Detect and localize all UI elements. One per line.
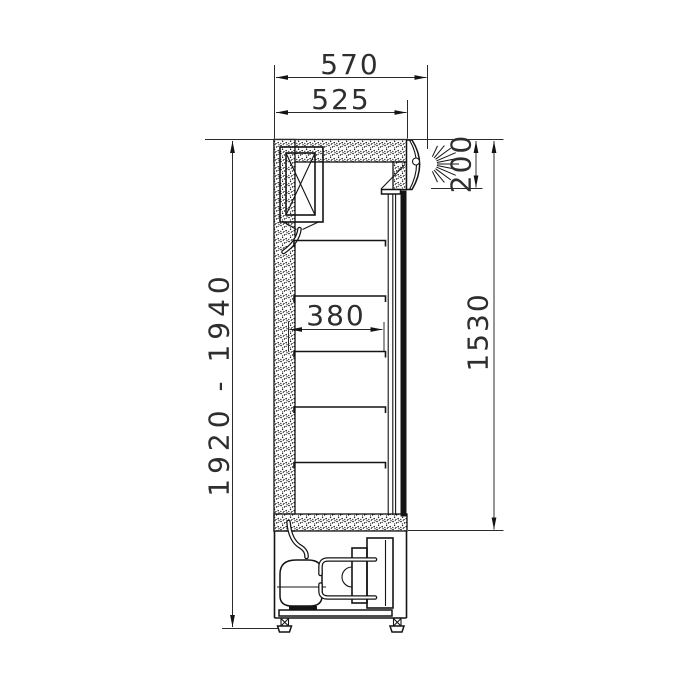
insulation-bottom	[274, 514, 407, 531]
dimension-cabinet-depth: 525	[276, 83, 408, 139]
dimension-overall-height: 1920 - 1940	[203, 140, 504, 629]
shelf	[294, 241, 386, 247]
dim-cabinet-depth-label: 525	[311, 83, 370, 116]
condenser-plate	[352, 548, 367, 603]
technical-drawing-page: 570 525 1920 - 1940 1530 200 380	[0, 0, 695, 695]
dim-canopy-height-label: 200	[445, 134, 478, 193]
base-plate	[279, 610, 392, 616]
dimension-shelf-depth: 380	[289, 299, 385, 351]
dimension-interior-height: 1530	[408, 141, 504, 531]
compressor-body	[280, 560, 322, 606]
machine-compartment	[275, 522, 407, 632]
shelf	[294, 463, 386, 469]
cabinet-section-drawing: 570 525 1920 - 1940 1530 200 380	[0, 0, 695, 695]
fan-shroud-arc	[342, 567, 352, 587]
door-frame-corner	[393, 162, 407, 190]
door-outer-panel	[401, 191, 407, 517]
foot-base	[278, 626, 292, 632]
door-top-rail	[382, 190, 401, 195]
dim-interior-height-label: 1530	[462, 292, 495, 371]
shelves	[294, 241, 386, 469]
levelling-foot-right	[390, 618, 404, 632]
dim-shelf-depth-label: 380	[306, 299, 365, 332]
lamp-screw	[413, 158, 420, 165]
shelf	[294, 352, 386, 358]
insulation-left	[274, 140, 295, 532]
foot-base	[390, 626, 404, 632]
dim-overall-depth-label: 570	[320, 48, 379, 81]
levelling-foot-left	[278, 618, 292, 632]
shelf	[294, 407, 386, 413]
dim-overall-height-label: 1920 - 1940	[203, 271, 236, 496]
